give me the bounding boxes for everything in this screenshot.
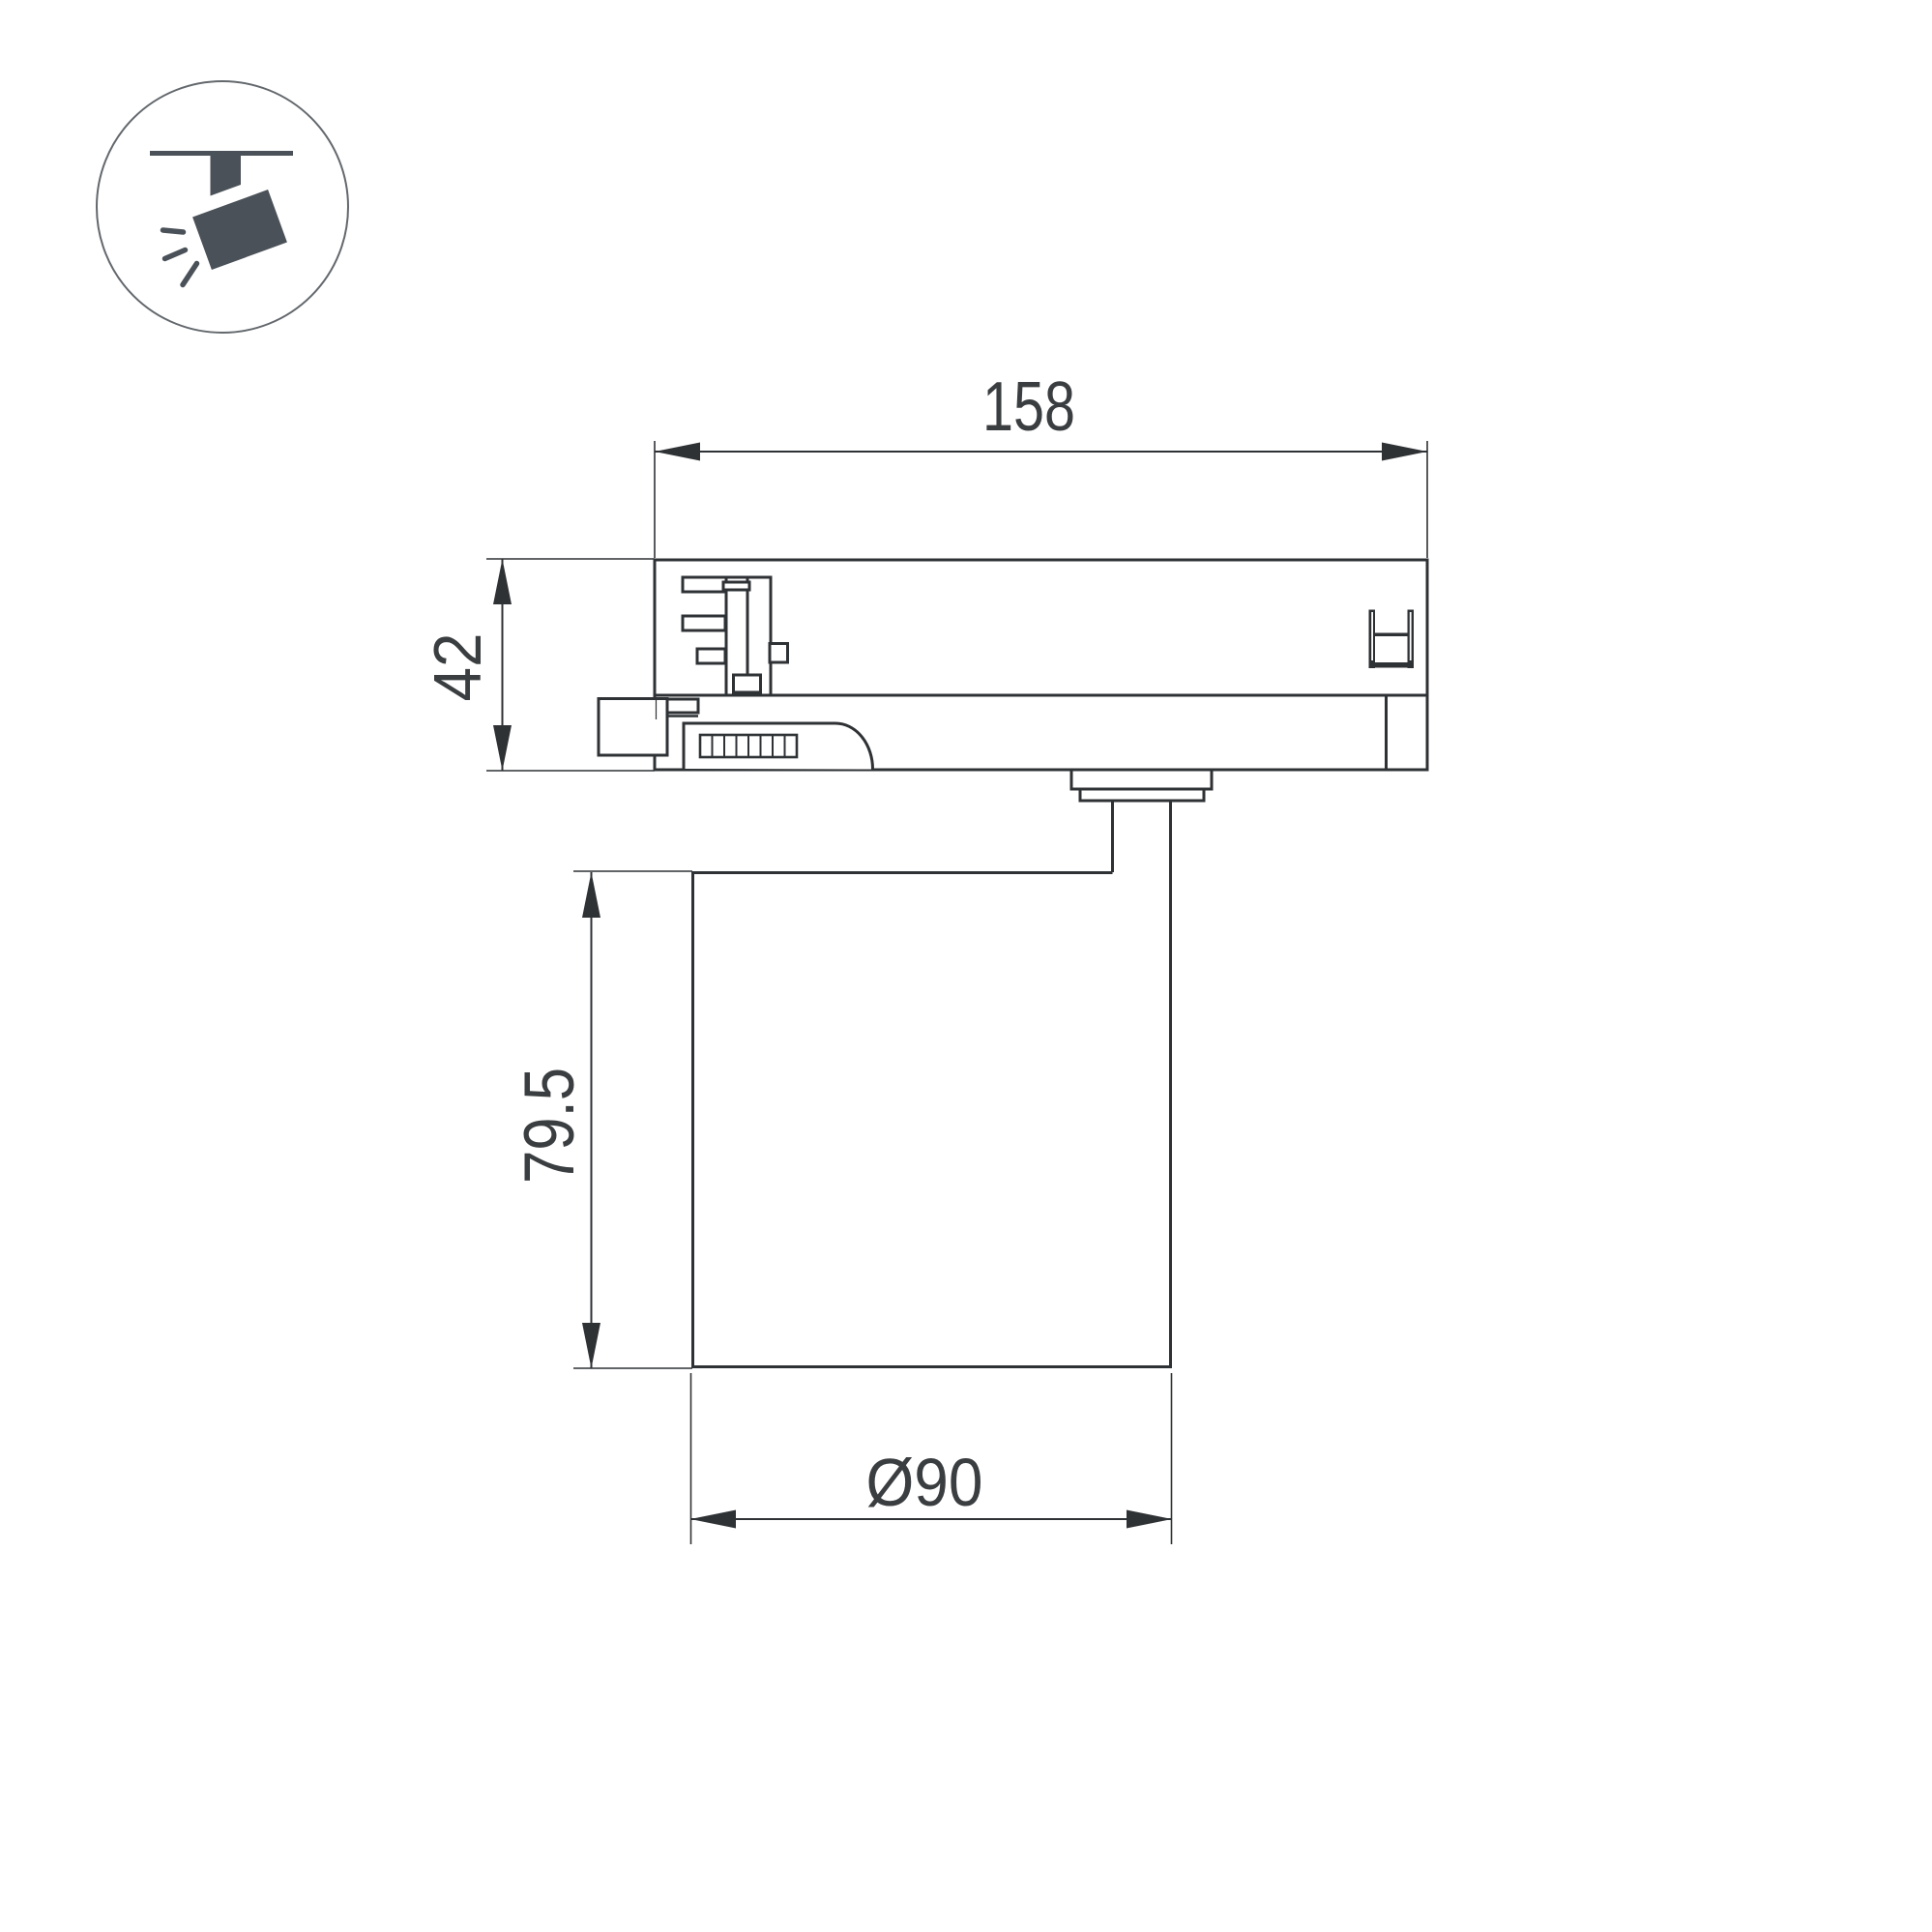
svg-text:42: 42	[420, 633, 495, 702]
svg-text:79.5: 79.5	[511, 1068, 589, 1184]
svg-text:158: 158	[982, 368, 1075, 446]
svg-text:Ø90: Ø90	[866, 1445, 983, 1520]
